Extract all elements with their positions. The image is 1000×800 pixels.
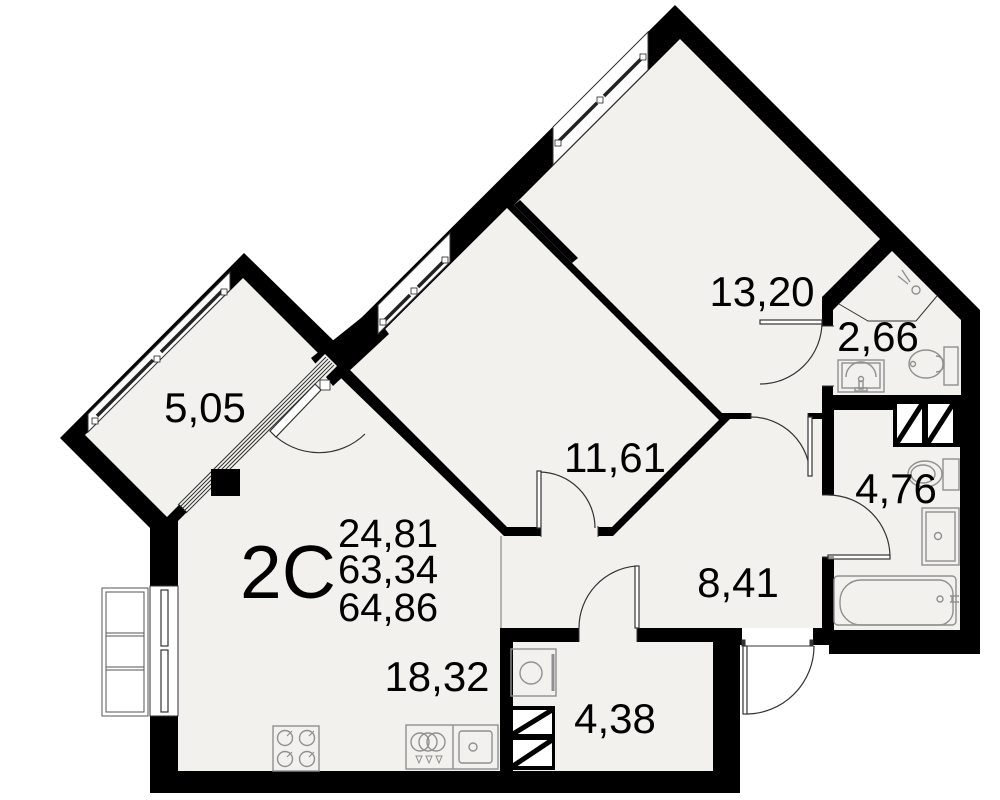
svg-text:11,61: 11,61 — [564, 434, 666, 481]
svg-text:13,20: 13,20 — [709, 268, 814, 315]
svg-text:2,66: 2,66 — [837, 313, 919, 360]
svg-text:8,41: 8,41 — [697, 559, 779, 606]
svg-text:64,86: 64,86 — [338, 586, 438, 630]
svg-text:5,05: 5,05 — [164, 384, 246, 431]
svg-text:4,76: 4,76 — [855, 465, 937, 512]
svg-text:18,32: 18,32 — [384, 653, 489, 700]
svg-text:4,38: 4,38 — [574, 695, 656, 742]
svg-text:2C: 2C — [240, 530, 336, 614]
